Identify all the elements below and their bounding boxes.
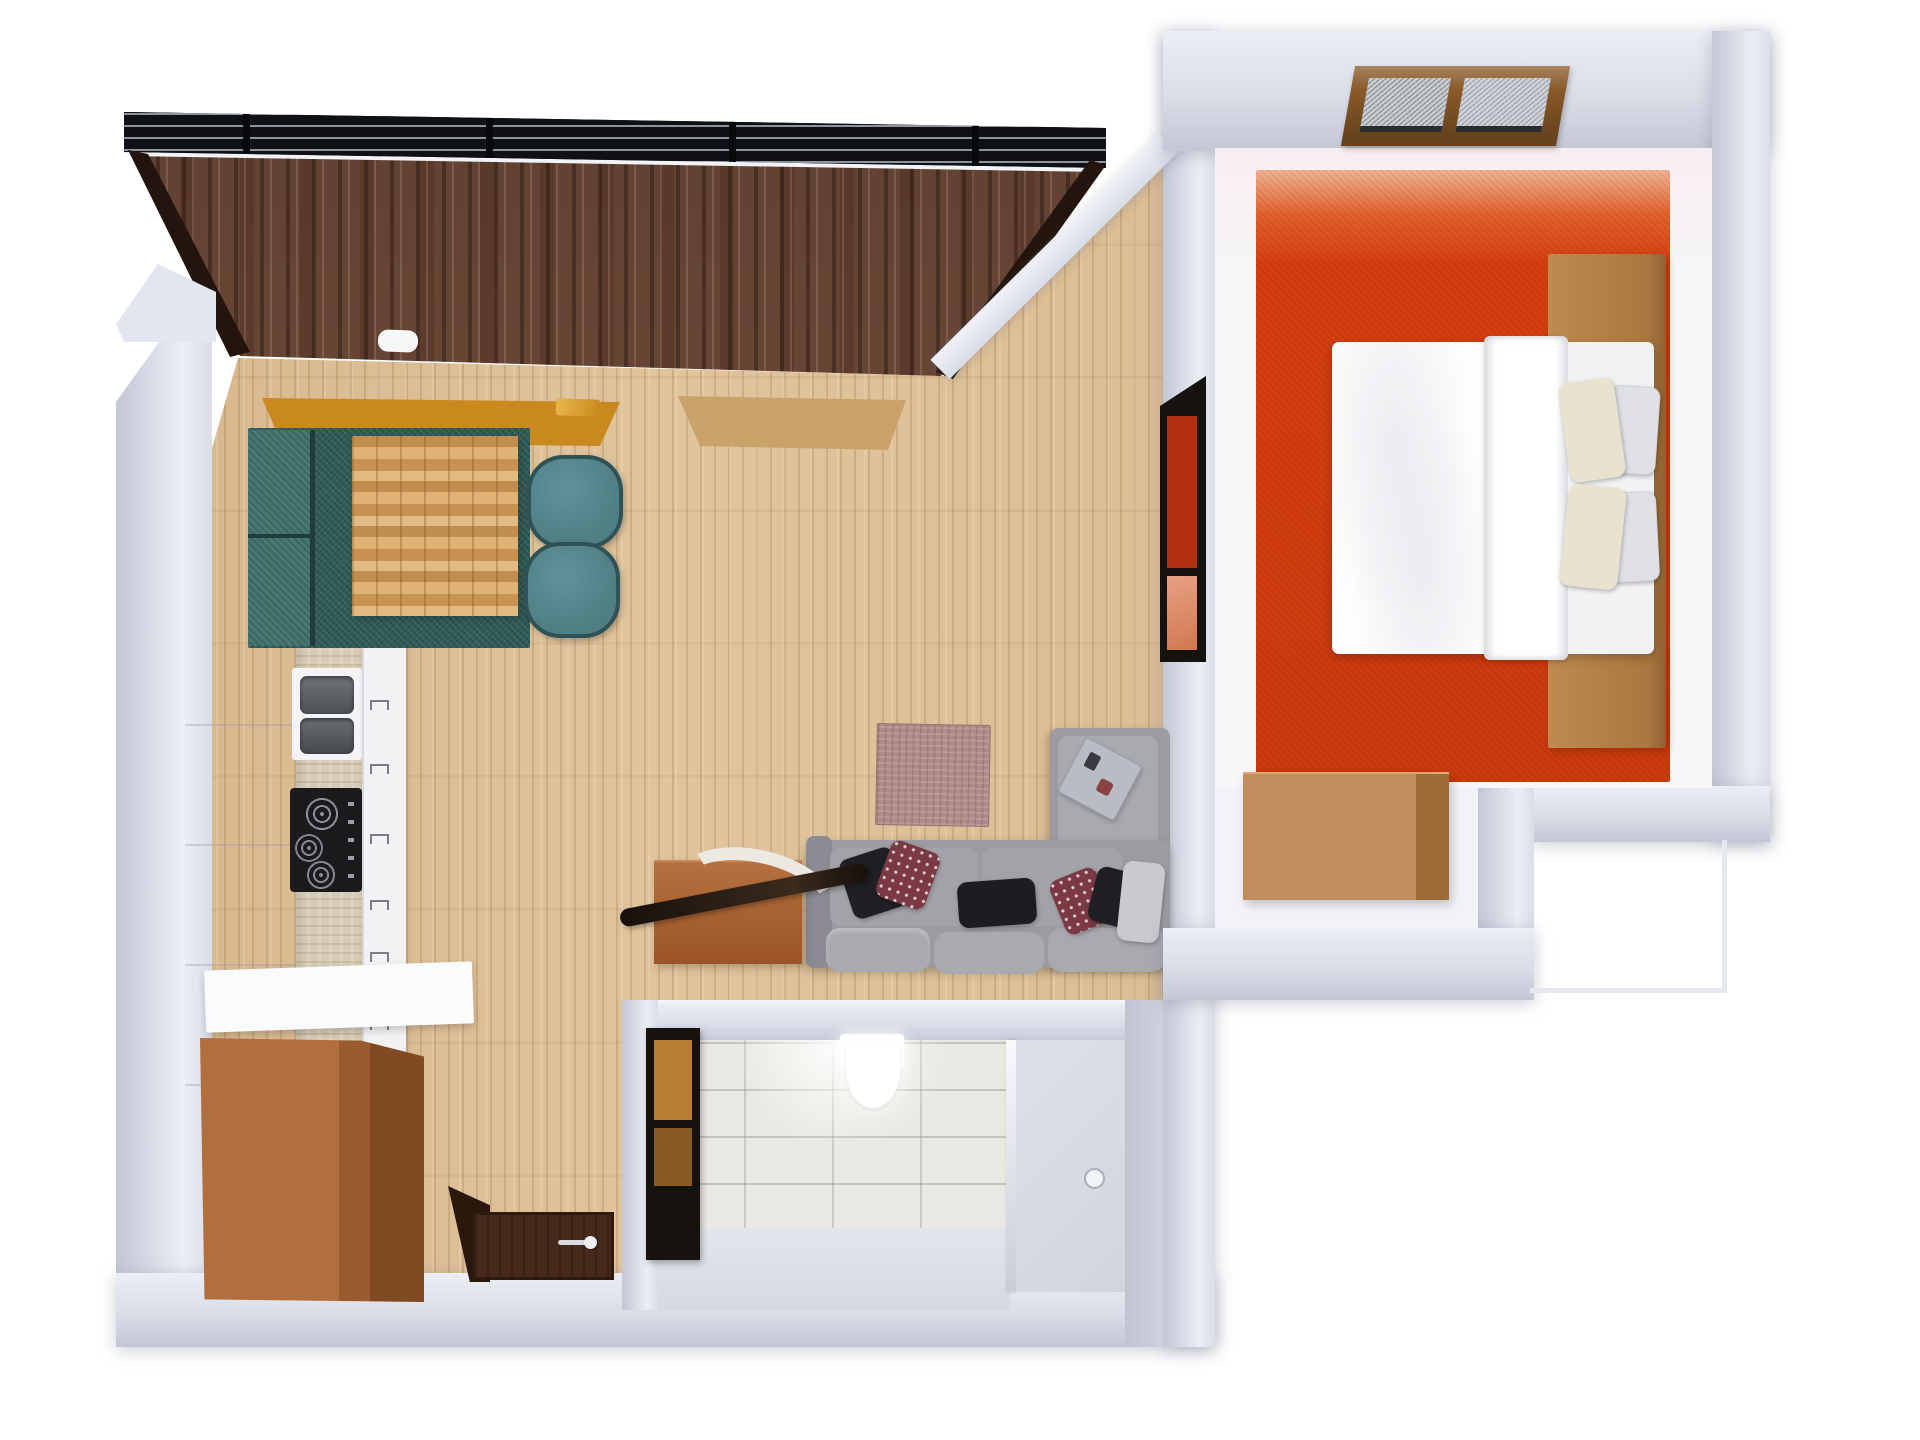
bed-pillow-cream <box>1559 483 1627 591</box>
tray-item-dark <box>1083 751 1101 771</box>
drawer-handle <box>370 700 389 710</box>
shower-floor <box>1016 1040 1125 1292</box>
dining-chair <box>527 455 623 549</box>
sink-basin-bottom <box>300 718 354 754</box>
bathroom-lower-floor <box>658 1228 1010 1310</box>
drawer-handle <box>370 900 389 910</box>
pass-through-pane-red <box>1167 416 1197 568</box>
wardrobe <box>200 1038 424 1302</box>
dining-chair <box>524 542 620 638</box>
bedroom-wall-right <box>1712 31 1770 841</box>
bench-gap <box>248 534 310 538</box>
door-handle-knob <box>584 1236 597 1249</box>
cooktop-knobs <box>348 802 354 878</box>
bedroom-wall-bottom-right <box>1530 786 1770 842</box>
dining-window-latch <box>556 398 601 417</box>
dining-bench <box>248 430 315 646</box>
burner-icon <box>306 860 336 890</box>
sofa-seat-cushion <box>934 932 1044 974</box>
bathroom-vanity-frame <box>646 1028 700 1260</box>
burner-icon <box>295 834 323 862</box>
dining-table <box>352 436 518 616</box>
sink-basin-top <box>300 676 354 714</box>
drawer-handle <box>370 952 389 962</box>
window-pane <box>1359 78 1451 132</box>
living-area-rug <box>875 723 991 827</box>
bedroom-nook-wall-bottom <box>1163 928 1534 1000</box>
tray-item-red <box>1095 778 1114 797</box>
kitchen-cooktop <box>290 788 362 892</box>
drawer-handle <box>370 764 389 774</box>
floorplan-canvas <box>0 0 1920 1440</box>
sofa-pillow-light <box>1116 860 1166 944</box>
drawer-handle <box>370 834 389 844</box>
window-pane <box>1455 78 1551 132</box>
kitchen-island-counter <box>204 961 474 1032</box>
sofa-pillow-dark-center <box>956 877 1037 928</box>
burner-icon <box>304 796 340 832</box>
bathroom-wall-right <box>1125 1000 1163 1347</box>
bedroom-dresser <box>1243 772 1449 900</box>
bed-duvet-fold <box>1484 336 1568 660</box>
wall-right-living-bedroom <box>1163 31 1215 1347</box>
sofa-seat-cushion <box>826 928 930 972</box>
vanity-wood-panel <box>654 1128 692 1186</box>
bed-duvet <box>1332 342 1484 654</box>
vanity-wood-panel <box>654 1040 692 1120</box>
pass-through-frame <box>1160 376 1206 662</box>
shower-glass-partition <box>1006 1040 1016 1292</box>
wall-handle-tab <box>378 329 419 352</box>
terrace-outline-vertical <box>1722 840 1727 992</box>
kitchen-sink-unit <box>292 668 362 760</box>
pass-through-pane-salmon <box>1167 576 1197 650</box>
shower-drain <box>1084 1168 1105 1189</box>
bedroom-window <box>1341 66 1570 146</box>
terrace-outline-horizontal <box>1530 988 1727 993</box>
bathroom-tile-floor <box>658 1040 1010 1230</box>
